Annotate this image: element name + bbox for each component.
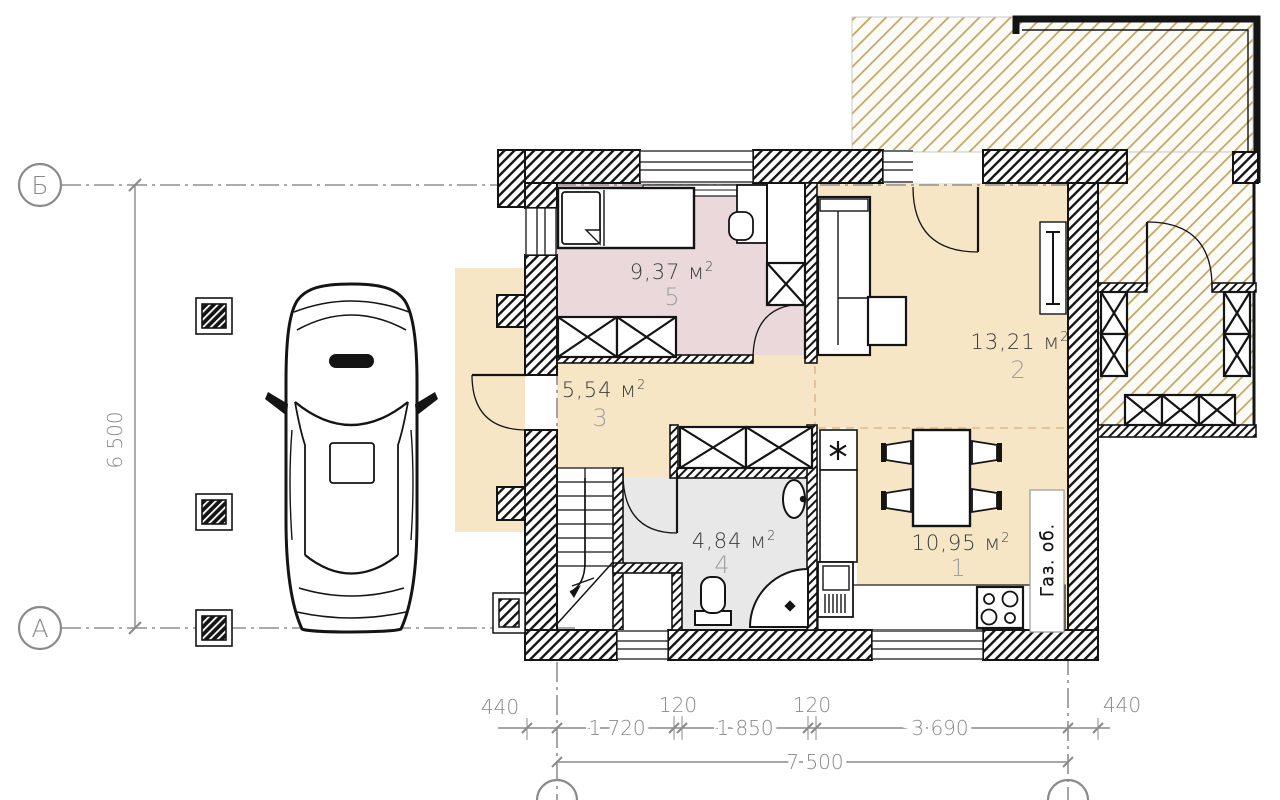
kitchen-counter-bottom [818,585,1065,630]
chair [972,441,1002,464]
svg-text:2: 2 [1010,356,1025,384]
svg-text:4,84 м2: 4,84 м2 [692,529,777,553]
dim-label: 440 [1103,693,1141,717]
svg-text:9,37 м2: 9,37 м2 [630,260,715,284]
car-sunroof [330,443,374,483]
window-left [525,208,557,255]
radiator-living [1040,222,1066,314]
svg-text:4: 4 [714,551,729,579]
dim-label-total: 7 500 [786,750,843,774]
svg-text:13,21 м2: 13,21 м2 [971,330,1070,354]
wardrobe-icon [1199,395,1235,425]
wardrobe-icon [617,317,676,357]
corner-pier [498,150,525,207]
window-bedroom-top [640,150,753,183]
wardrobe-icon [1101,334,1127,376]
axis-label-a: А [31,614,48,643]
window-kitchen-bottom [872,630,983,660]
pilaster-bottom [493,593,525,633]
dim-label: 120 [659,693,697,717]
toilet [695,577,731,625]
wardrobe-icon [1224,334,1250,376]
svg-text:5: 5 [664,283,679,311]
dim-label: 1 720 [588,716,645,740]
wardrobe-icon [746,427,812,468]
wardrobe-icon [1162,395,1199,425]
counter [820,470,857,562]
svg-text:5,54 м2: 5,54 м2 [562,378,647,402]
sink [783,480,806,518]
floor-plan-page: Газ. об. Б А [0,0,1280,800]
chair [729,212,753,240]
wardrobe-icon [558,317,617,357]
car-vent [329,354,374,368]
svg-text:10,95 м2: 10,95 м2 [912,531,1011,555]
svg-text:3: 3 [592,404,607,432]
dim-label: 1 850 [716,716,773,740]
wardrobe-icon [1125,395,1162,425]
sofa [818,197,870,355]
cabinet [767,183,805,263]
pilaster [497,487,525,520]
gas-label: Газ. об. [1038,523,1058,597]
axis-label-b: Б [31,171,48,200]
stove [977,587,1023,628]
column [196,494,232,530]
chair [972,489,1002,512]
wardrobe-icon [767,263,805,305]
window-sidelight-top [883,150,913,183]
hall-closet [680,427,812,468]
wardrobe-icon [1224,292,1250,334]
pilaster [497,295,525,327]
column [196,610,232,646]
dining-table [913,430,970,526]
svg-text:1: 1 [950,554,965,582]
dim-label-height: 6 500 [103,411,127,468]
floor-plan-drawing: Газ. об. Б А [0,0,1280,800]
dim-label: 440 [481,695,519,719]
chair [881,441,911,464]
window-closet-bottom [617,630,668,660]
wardrobe-icon [1101,292,1127,334]
wardrobe-icon [680,427,746,468]
chair [881,489,911,512]
sofa-chaise [868,297,906,345]
gas-unit: Газ. об. [1030,490,1064,632]
column [196,298,232,334]
porch-pier [1233,152,1258,183]
appliance [818,562,853,617]
dim-label: 3 690 [911,716,968,740]
dim-label: 120 [793,693,831,717]
car [265,284,438,632]
